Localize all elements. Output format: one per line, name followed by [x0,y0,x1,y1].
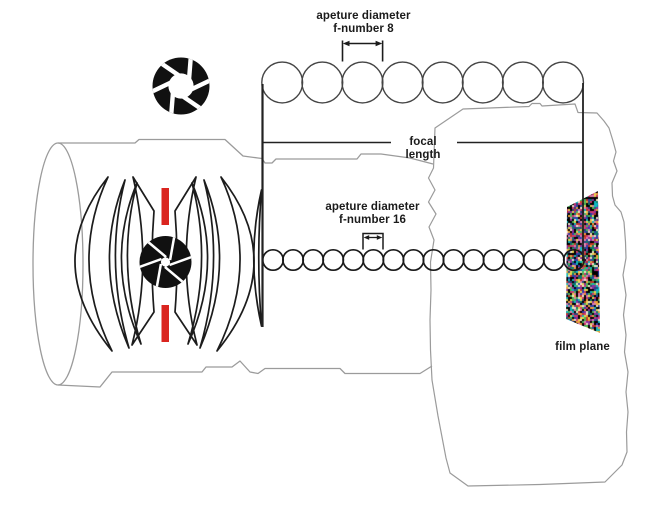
aperture-circle [423,250,443,270]
aperture-circle [443,250,463,270]
aperture-circle [342,62,383,103]
aperture-circle [363,250,383,270]
film-plane-label: film plane [540,341,625,354]
aperture-circle [382,62,423,103]
focal-length-label: focal length [391,136,455,162]
aperture-circle [462,62,503,103]
aperture-circle [283,250,303,270]
f16-callout-label: apeture diameter f-number 16 [292,201,453,227]
f16-callout-bracket [363,234,383,250]
aperture-circle [302,62,343,103]
aperture-circle [383,250,403,270]
aperture-diagram: apeture diameter f-number 8 apeture diam… [0,0,650,505]
aperture-circle [323,250,343,270]
f16-aperture-circle-row [263,250,584,270]
aperture-circle [263,250,283,270]
aperture-circle [543,62,584,103]
aperture-circle [544,250,564,270]
aperture-circle [483,250,503,270]
aperture-circle [564,250,584,270]
aperture-circle [343,250,363,270]
aperture-circle [422,62,463,103]
aperture-ring-icon [151,57,211,115]
aperture-circle [524,250,544,270]
camera-body-outline [429,104,629,487]
f16-callout-line2: f-number 16 [292,214,453,227]
aperture-circle [463,250,483,270]
aperture-circle [262,62,303,103]
diagram-canvas [0,0,650,505]
aperture-blades-icon [140,236,192,288]
aperture-circle [503,62,544,103]
aperture-circle [504,250,524,270]
lens-barrel-outline [33,140,433,388]
f8-callout-line2: f-number 8 [283,23,444,36]
f8-callout-line1: apeture diameter [283,10,444,23]
f8-callout-bracket [343,41,383,62]
aperture-circle [403,250,423,270]
f16-callout-line1: apeture diameter [292,201,453,214]
aperture-circle [303,250,323,270]
f8-aperture-circle-row [262,62,584,103]
f8-callout-label: apeture diameter f-number 8 [283,10,444,36]
